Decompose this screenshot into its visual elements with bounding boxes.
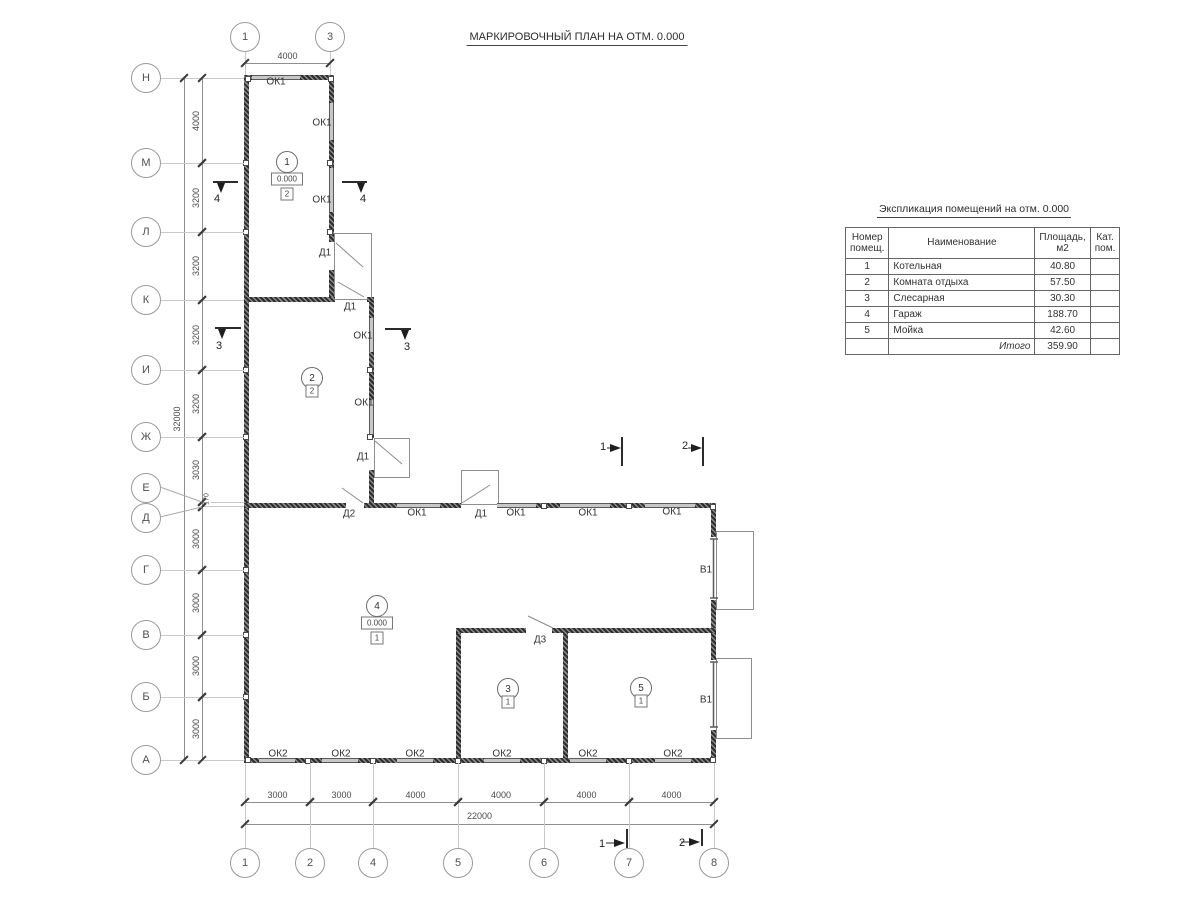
dim-label: 3000: [191, 591, 201, 613]
section-label: 1: [599, 838, 605, 850]
wall-node-square: [626, 503, 632, 509]
dim-label: 3200: [191, 324, 201, 346]
axis-line: [544, 763, 545, 848]
explication-cell: 4: [846, 307, 889, 323]
wall-node-square: [327, 160, 333, 166]
opening-label: ОК2: [405, 749, 424, 760]
opening-label: Д1: [319, 248, 331, 259]
opening-label: ОК1: [506, 508, 525, 519]
explication-cell: [1090, 291, 1120, 307]
top-dimension-line: [245, 63, 330, 64]
opening-label: Д1: [475, 509, 487, 520]
explication-cell: 1: [846, 259, 889, 275]
room-number-bubble: 4: [366, 595, 388, 617]
axis-line: [714, 763, 715, 848]
explication-cell: 188.70: [1035, 307, 1090, 323]
explication-cell: Комната отдыха: [889, 275, 1035, 291]
explication-cell: 5: [846, 323, 889, 339]
col-header-number: Номерпомещ.: [846, 228, 889, 259]
explication-row: 1Котельная40.80: [846, 259, 1120, 275]
explication-cell: 3: [846, 291, 889, 307]
opening-label: ОК2: [492, 749, 511, 760]
wall-node-square: [367, 367, 373, 373]
niche-outline: [374, 438, 410, 478]
wall-segment: [329, 212, 334, 242]
wall-node-square: [710, 504, 716, 510]
wall-segment: [456, 628, 526, 633]
explication-row: 2Комната отдыха57.50: [846, 275, 1120, 291]
opening-label: ОК1: [312, 195, 331, 206]
opening-label: ОК1: [266, 77, 285, 88]
opening-label: ОК1: [354, 398, 373, 409]
dim-label: 3000: [191, 655, 201, 677]
wall-node-square: [327, 229, 333, 235]
opening-label: В1: [700, 565, 712, 576]
explication-cell: [1090, 259, 1120, 275]
col-header-category: Кат.пом.: [1090, 228, 1120, 259]
vestibule-outline: [334, 233, 372, 300]
explication-cell: 2: [846, 275, 889, 291]
explication-cell: 42.60: [1035, 323, 1090, 339]
opening-label: ОК2: [331, 749, 350, 760]
category-mark: 1: [371, 632, 384, 645]
axis-bubble-bottom: 4: [358, 848, 388, 878]
opening-label: ОК1: [578, 508, 597, 519]
axis-bubble-left: А: [131, 745, 161, 775]
explication-row: 4Гараж188.70: [846, 307, 1120, 323]
axis-bubble-left: М: [131, 148, 161, 178]
explication-cell: Гараж: [889, 307, 1035, 323]
dim-label: 4000: [575, 790, 597, 800]
explication-cell: Итого: [889, 339, 1035, 355]
axis-line: [310, 763, 311, 848]
bottom-dimension-line: [245, 802, 714, 803]
section-label: 1: [600, 441, 606, 453]
opening-label: ОК2: [268, 749, 287, 760]
axis-line: [373, 763, 374, 848]
wall-node-square: [367, 434, 373, 440]
explication-cell: 359.90: [1035, 339, 1090, 355]
axis-bubble-left: К: [131, 285, 161, 315]
explication-total-row: Итого359.90: [846, 339, 1120, 355]
wall-segment: [358, 758, 397, 763]
section-label: 3: [216, 340, 222, 352]
elevation-mark: 0.000: [271, 173, 303, 186]
wall-node-square: [541, 503, 547, 509]
section-label: 2: [682, 440, 688, 452]
section-label: 3: [404, 341, 410, 353]
wall-segment: [456, 633, 461, 758]
axis-bubble-bottom: 6: [529, 848, 559, 878]
wall-segment: [552, 628, 716, 633]
gate-porch-outline: [716, 531, 754, 610]
explication-row: 3Слесарная30.30: [846, 291, 1120, 307]
category-mark: 1: [502, 696, 515, 709]
section-label: 4: [360, 193, 366, 205]
dim-label: 4000: [490, 790, 512, 800]
dim-label: 4000: [404, 790, 426, 800]
axis-bubble-left: В: [131, 620, 161, 650]
dim-label: 4000: [660, 790, 682, 800]
col-header-area: Площадь, м2: [1035, 228, 1090, 259]
axis-line: [458, 763, 459, 848]
explication-cell: 57.50: [1035, 275, 1090, 291]
axis-bubble-left: Б: [131, 682, 161, 712]
axis-line: [202, 506, 244, 507]
wall-segment: [244, 503, 346, 508]
dim-total-label: 32000: [172, 405, 182, 432]
wall-segment: [369, 302, 374, 318]
dim-label: 4000: [191, 109, 201, 131]
dim-label: 3200: [191, 255, 201, 277]
left-dimension-line: [202, 78, 203, 760]
explication-cell: [846, 339, 889, 355]
floor-plan-drawing: МАРКИРОВОЧНЫЙ ПЛАН НА ОТМ. 0.000 Эксплик…: [0, 0, 1200, 900]
explication-table: Номерпомещ. Наименование Площадь, м2 Кат…: [845, 227, 1120, 355]
wall-segment: [369, 352, 374, 400]
opening-label: Д1: [357, 452, 369, 463]
wall-segment: [563, 633, 568, 758]
axis-line: [245, 763, 246, 848]
wall-segment: [329, 80, 334, 103]
explication-cell: Котельная: [889, 259, 1035, 275]
wall-segment: [244, 75, 249, 763]
wall-segment: [244, 297, 335, 302]
axis-bubble-left: Л: [131, 217, 161, 247]
dim-label: 3000: [266, 790, 288, 800]
explication-cell: [1090, 307, 1120, 323]
explication-title: Экспликация помещений на отм. 0.000: [877, 203, 1071, 218]
bottom-total-dimension-line: [245, 824, 714, 825]
opening-label: Д2: [343, 509, 355, 520]
opening-label: ОК1: [662, 507, 681, 518]
dim-label: 3200: [191, 392, 201, 414]
category-mark: 1: [635, 695, 648, 708]
explication-cell: [1090, 275, 1120, 291]
entrance-porch-outline: [461, 470, 499, 505]
dim-label: 3000: [330, 790, 352, 800]
wall-segment: [329, 270, 334, 297]
explication-cell: [1090, 339, 1120, 355]
elevation-mark: 0.000: [361, 617, 393, 630]
wall-node-square: [328, 76, 334, 82]
col-header-name: Наименование: [889, 228, 1035, 259]
dim-label: 3200: [191, 186, 201, 208]
axis-bubble-left: Г: [131, 555, 161, 585]
wall-node-square: [710, 757, 716, 763]
dim-label: 3000: [191, 527, 201, 549]
explication-row: 5Мойка42.60: [846, 323, 1120, 339]
wall-segment: [364, 503, 397, 508]
opening-label: ОК1: [312, 118, 331, 129]
dim-label: 4000: [276, 51, 298, 61]
explication-cell: 30.30: [1035, 291, 1090, 307]
explication-cell: 40.80: [1035, 259, 1090, 275]
opening-label: ОК1: [407, 508, 426, 519]
axis-bubble-left: Е: [131, 473, 161, 503]
wall-node-square: [245, 76, 251, 82]
wall-segment: [440, 503, 461, 508]
explication-cell: [1090, 323, 1120, 339]
opening-label: В1: [700, 695, 712, 706]
explication-cell: Слесарная: [889, 291, 1035, 307]
axis-bubble-bottom: 7: [614, 848, 644, 878]
axis-line: [629, 763, 630, 848]
opening-label: ОК2: [578, 749, 597, 760]
axis-bubble-bottom: 5: [443, 848, 473, 878]
opening-label: Д3: [534, 635, 546, 646]
axis-leader-lines: [160, 487, 202, 517]
axis-bubble-top: 3: [315, 22, 345, 52]
axis-bubble-bottom: 8: [699, 848, 729, 878]
axis-bubble-left: Д: [131, 503, 161, 533]
opening-label: ОК2: [663, 749, 682, 760]
gate-porch-outline: [716, 658, 752, 739]
room-number-bubble: 1: [276, 151, 298, 173]
axis-bubble-left: Ж: [131, 422, 161, 452]
dim-label: 3000: [191, 717, 201, 739]
axis-bubble-bottom: 1: [230, 848, 260, 878]
explication-cell: Мойка: [889, 323, 1035, 339]
section-label: 4: [214, 193, 220, 205]
drawing-title: МАРКИРОВОЧНЫЙ ПЛАН НА ОТМ. 0.000: [467, 31, 688, 46]
section-label: 2: [679, 837, 685, 849]
axis-bubble-bottom: 2: [295, 848, 325, 878]
category-mark: 2: [281, 188, 294, 201]
wall-segment: [536, 503, 560, 508]
axis-bubble-top: 1: [230, 22, 260, 52]
category-mark: 2: [306, 385, 319, 398]
opening-label: Д1: [344, 302, 356, 313]
axis-bubble-left: И: [131, 355, 161, 385]
opening-label: ОК1: [353, 331, 372, 342]
left-total-dimension-line: [184, 78, 185, 760]
dim-label: 3030: [191, 458, 201, 480]
dim-total-label: 22000: [466, 811, 493, 821]
axis-bubble-left: Н: [131, 63, 161, 93]
